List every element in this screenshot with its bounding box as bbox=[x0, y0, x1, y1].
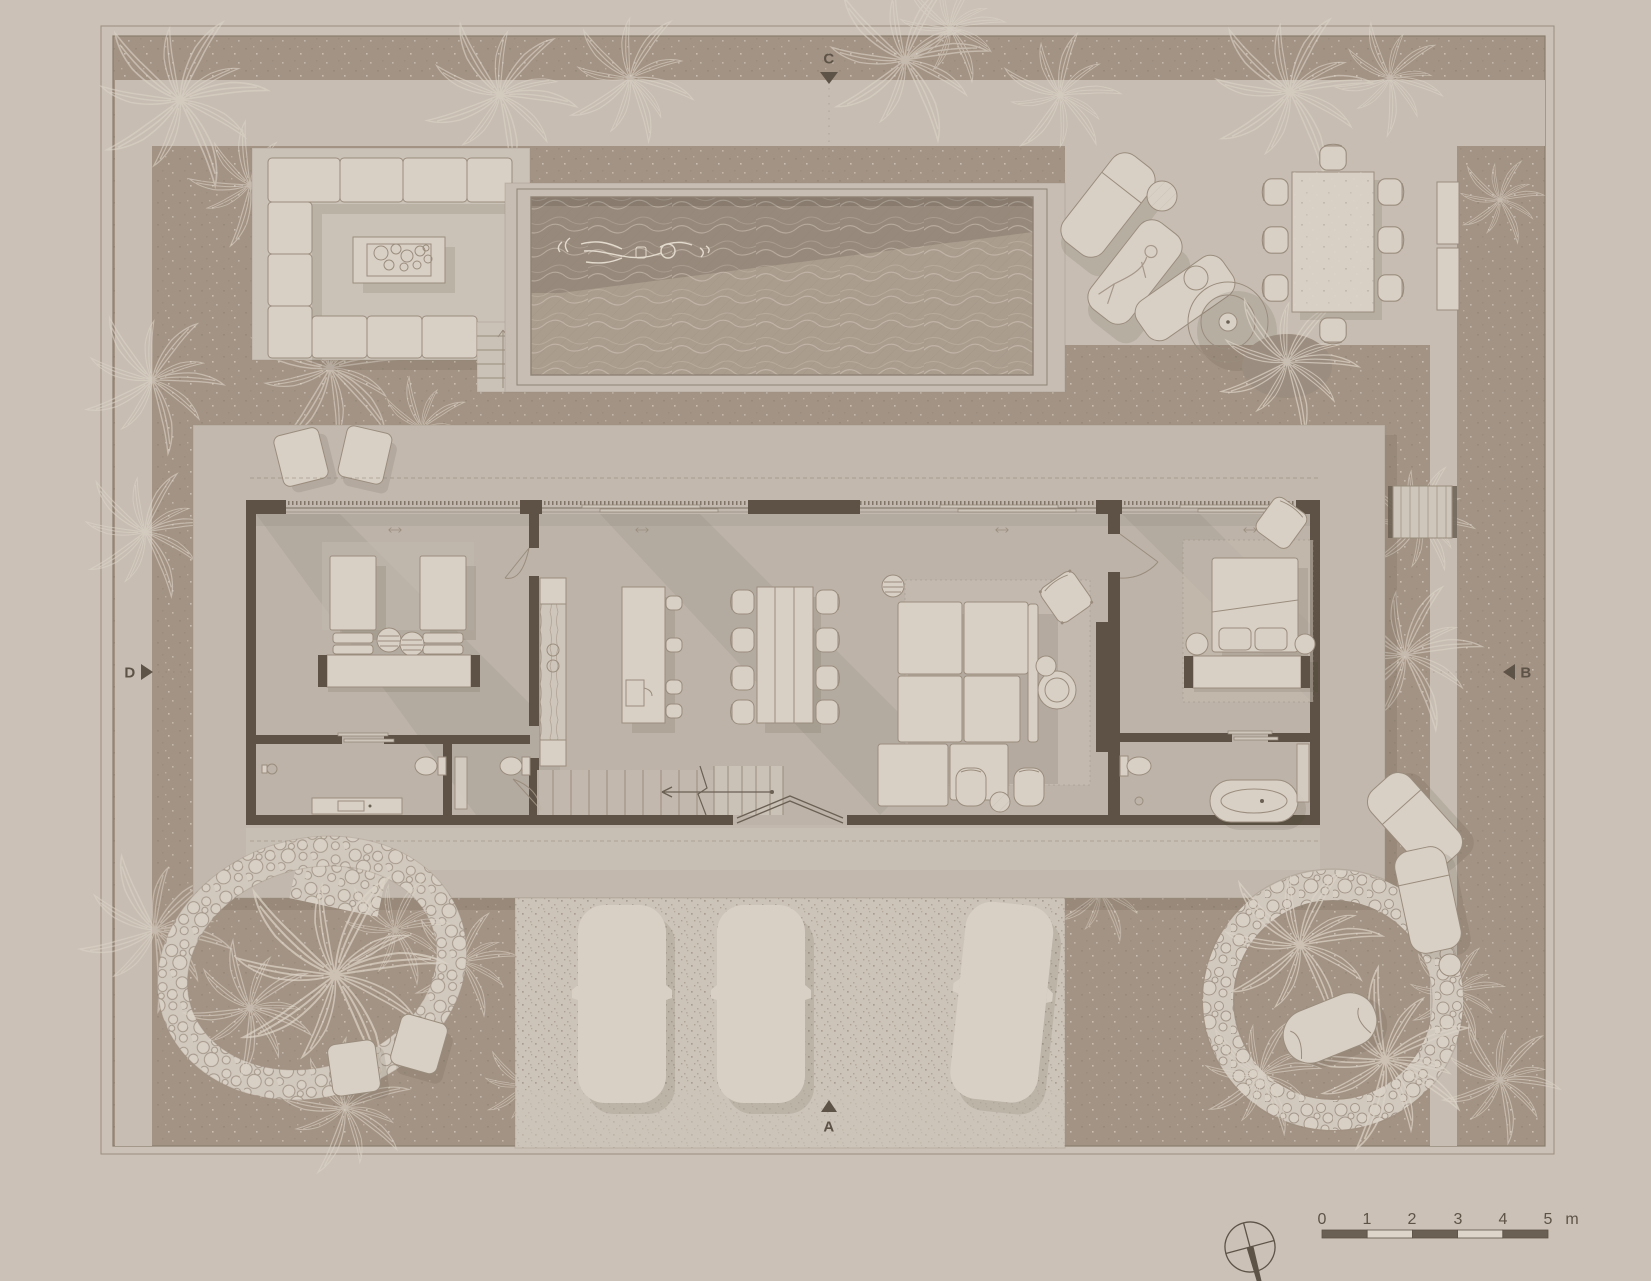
living-room bbox=[878, 568, 1094, 812]
doormat-steps bbox=[1388, 486, 1457, 538]
sunken-lounge bbox=[252, 148, 530, 392]
twin-bed bbox=[330, 556, 376, 630]
house bbox=[246, 478, 1320, 841]
driveway bbox=[515, 898, 1065, 1148]
pouf bbox=[400, 632, 424, 656]
car bbox=[572, 905, 675, 1114]
indoor-dining-table bbox=[757, 587, 813, 723]
freestanding-bathtub bbox=[1210, 780, 1306, 830]
scale-bar bbox=[1322, 1230, 1548, 1238]
site-plan-drawing bbox=[0, 0, 1651, 1281]
staircase bbox=[537, 766, 783, 815]
bedroom-bench bbox=[318, 655, 480, 692]
double-bed bbox=[1212, 558, 1298, 652]
bedside-table bbox=[1186, 633, 1208, 655]
pouf bbox=[882, 575, 904, 597]
bedside-table bbox=[1295, 634, 1315, 654]
swimming-pool bbox=[505, 183, 1065, 392]
small-table bbox=[1439, 954, 1461, 976]
toilet bbox=[415, 757, 446, 775]
left-walk bbox=[115, 80, 152, 1146]
car bbox=[711, 905, 814, 1114]
north-needle-icon bbox=[1247, 1246, 1266, 1281]
bath-shelf bbox=[1297, 744, 1309, 802]
compass bbox=[1219, 1216, 1286, 1281]
twin-bed bbox=[420, 556, 466, 630]
coffee-table bbox=[353, 237, 445, 283]
side-table bbox=[1038, 671, 1076, 709]
bed-bench bbox=[1184, 656, 1318, 692]
toilet bbox=[500, 757, 530, 775]
vanity bbox=[312, 798, 402, 814]
small-table bbox=[1184, 266, 1208, 290]
toilet bbox=[1120, 756, 1151, 776]
shower-niche bbox=[455, 757, 467, 809]
twin-bedroom bbox=[318, 542, 480, 692]
side-table bbox=[1036, 656, 1056, 676]
pouf bbox=[377, 628, 401, 652]
site-plan-canvas: C A D B 0 1 2 3 4 5 m bbox=[0, 0, 1651, 1281]
